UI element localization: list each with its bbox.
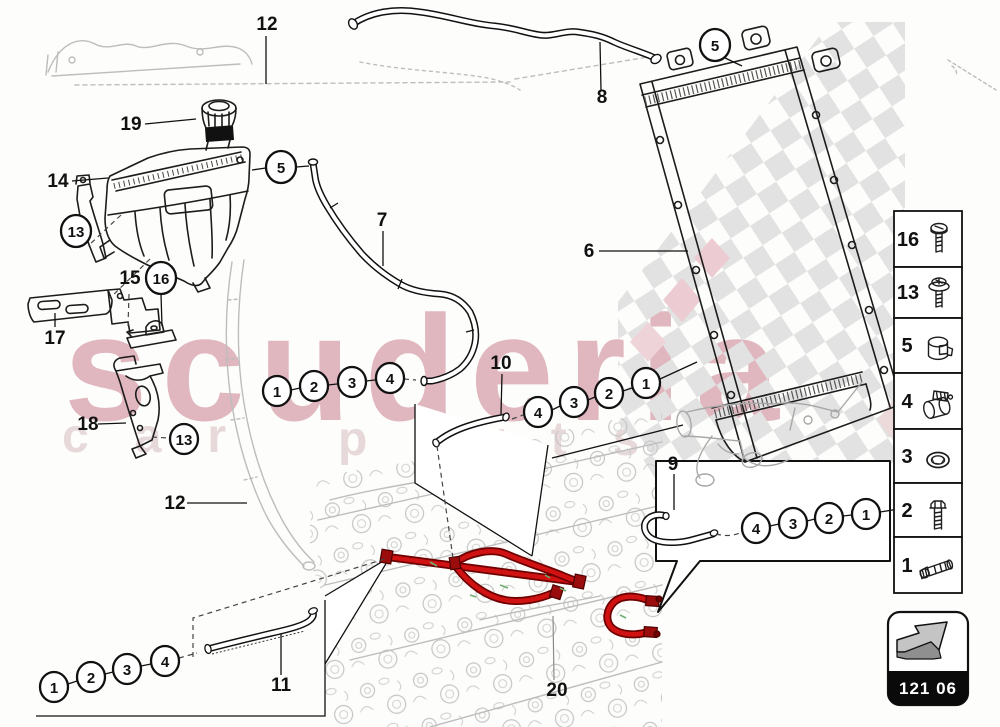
label-panel-top: 12 [256,14,277,35]
label-pipe-bottom: 11 [271,675,292,696]
legend-number: 16 [897,229,919,251]
callout-number: 1 [50,680,58,697]
callout-number: 3 [789,516,797,533]
callout-clamp-radiator: 5 [711,38,719,55]
callout-number: 1 [273,384,281,401]
diagram-canvas: scuderia car parts [0,0,1000,727]
label-bracket-gusset: 18 [77,414,98,435]
label-hose-small-mid: 10 [490,353,511,374]
callout-number: 3 [348,375,356,392]
label-hose-top: 8 [597,87,608,108]
legend-number: 1 [901,555,912,577]
pipe-11 [204,607,318,654]
callout-number: 2 [825,511,833,528]
callout-number: 4 [386,371,395,388]
callout-number: 4 [752,521,761,538]
callout-number: 4 [534,405,543,422]
legend-number: 5 [901,335,912,357]
callout-number: 2 [310,379,318,396]
label-sill: 12 [164,493,185,514]
legend-number: 3 [901,446,912,468]
callout-number: 4 [161,654,170,671]
label-cap: 19 [120,114,141,135]
label-bracket-left: 17 [44,328,65,349]
callout-number: 2 [605,386,613,403]
label-radiator: 6 [584,241,595,262]
legend-number: 2 [901,500,912,522]
callout-number: 1 [862,507,870,524]
callout-number: 1 [642,376,650,393]
label-hose-small-right: 9 [668,454,679,475]
label-bracket-mid: 15 [119,268,141,289]
callout-clip-left: 13 [68,224,85,241]
callout-row-bottom: 1 2 3 4 [40,646,179,702]
callout-number: 2 [87,670,95,687]
legend-number: 4 [901,391,913,413]
legend-number: 13 [897,282,919,304]
nav-box[interactable]: 121 06 [888,612,968,705]
parts-diagram-page: scuderia car parts [0,0,1000,727]
callout-number: 3 [123,662,131,679]
callout-number: 3 [570,395,578,412]
legend-sidebar: 16 13 5 4 3 2 1 [894,211,962,593]
callout-clip-mid: 16 [153,271,170,288]
label-tank: 14 [47,171,69,192]
label-engine: 20 [546,680,567,701]
hose-8 [347,11,663,66]
callout-clamp-tank: 5 [277,160,285,177]
nav-code: 121 06 [899,679,957,698]
tank-cap [202,100,236,142]
callout-clip-gusset: 13 [176,432,193,449]
label-hose-front: 7 [377,210,388,231]
